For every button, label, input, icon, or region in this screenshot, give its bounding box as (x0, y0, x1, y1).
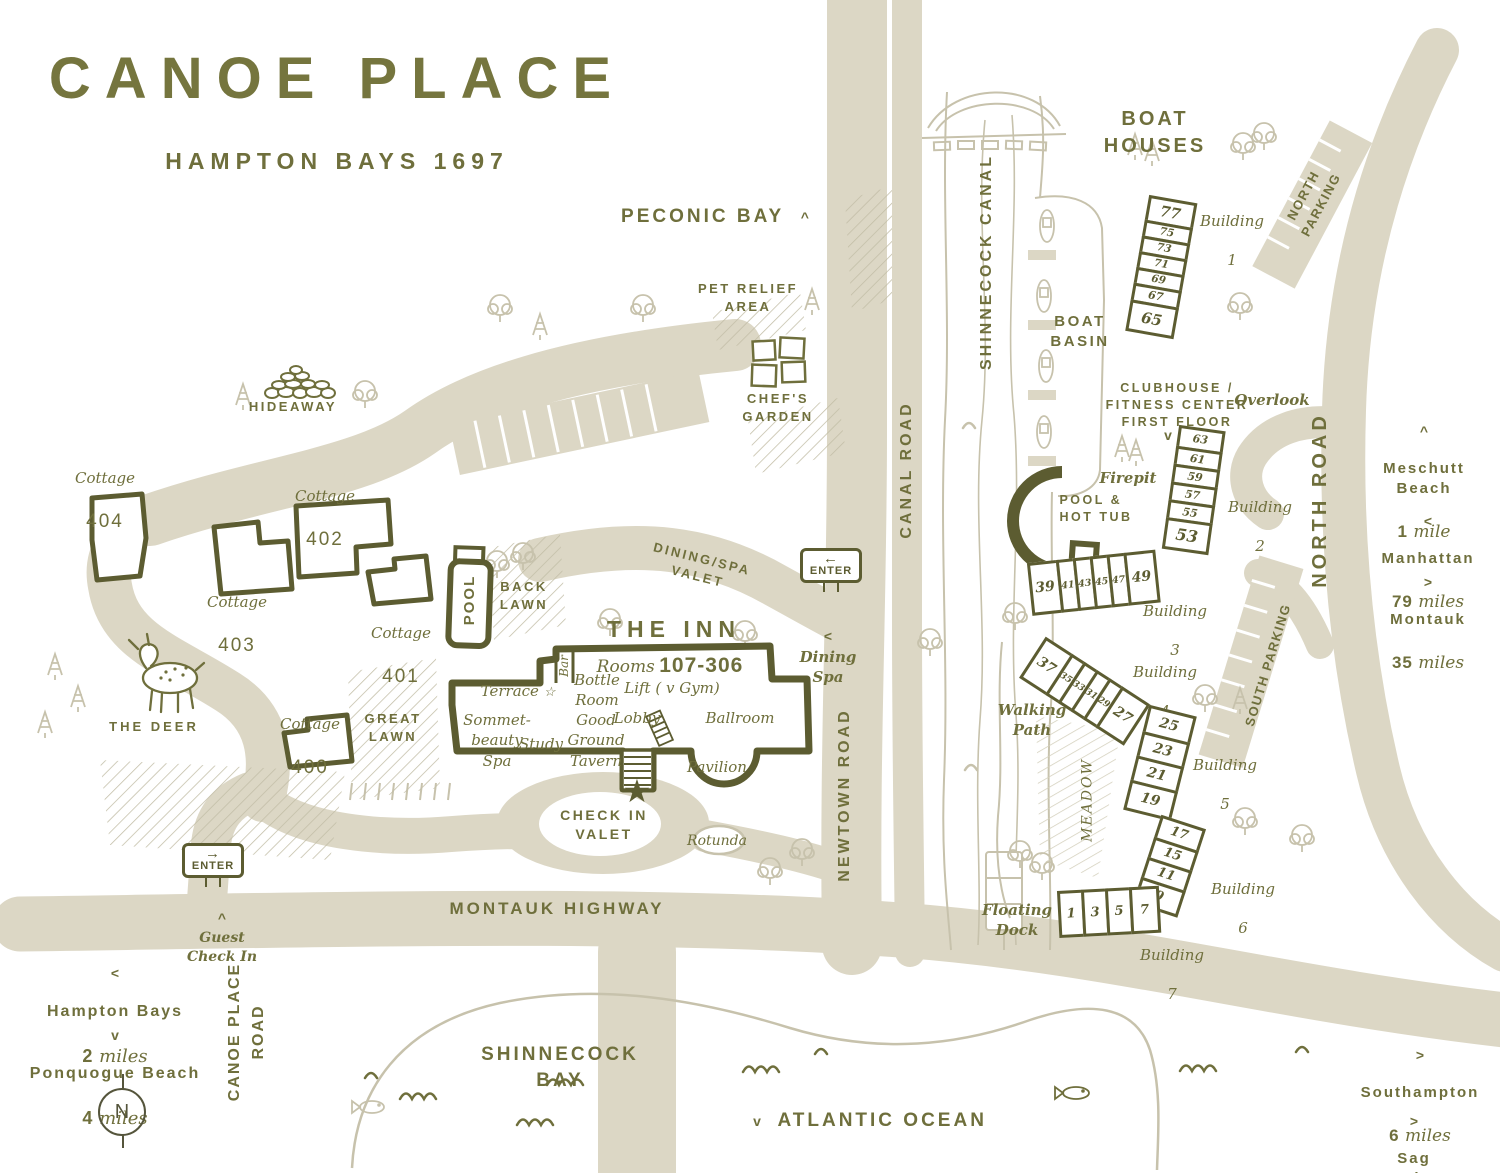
west-arrow-icon: < (47, 966, 183, 980)
cottage-404-label: Cottage 404 (75, 446, 135, 557)
building-number: 6 (1238, 919, 1248, 937)
lobby-label: Lobby (614, 708, 661, 728)
atlantic-ocean-label: v ATLANTIC OCEAN (753, 1108, 987, 1134)
guest-check-in-label: ^ Guest Check In (187, 886, 257, 989)
meadow-label: MEADOW (1078, 758, 1099, 842)
resort-map: CANOE PLACE HAMPTON BAYS 1697 PECONIC BA… (0, 0, 1500, 1173)
building-7-label: Building 7 (1140, 926, 1204, 1004)
atlantic-text: ATLANTIC OCEAN (777, 1110, 986, 1131)
cottage-403-label: Cottage 403 (207, 570, 267, 681)
unit-cell: 53 (1161, 516, 1212, 554)
dining-spa-label: < Dining Spa (800, 604, 857, 709)
terrace-star-icon: ☆ (544, 685, 556, 700)
cottage-word: Cottage (295, 486, 355, 506)
north-arrow-icon: ^ (801, 209, 809, 225)
newtown-road-label: NEWTOWN ROAD (833, 708, 857, 881)
cottage-400-label: Cottage 400 (280, 692, 340, 803)
montauk-highway-label: MONTAUK HIGHWAY (450, 898, 665, 921)
building-number: 7 (1167, 985, 1177, 1003)
canal-bridge (922, 92, 1066, 150)
cottage-401-label: Cottage 401 (371, 601, 431, 712)
montauk-distance: > Montauk 35 miles (1390, 553, 1466, 697)
check-in-valet-label: CHECK IN VALET (560, 806, 648, 844)
building-2-label: Building 2 (1228, 478, 1292, 556)
north-road-label: NORTH ROAD (1305, 412, 1335, 588)
hideaway-rocks (265, 366, 335, 398)
boat-basin-label: BOAT BASIN (1050, 312, 1109, 353)
chefs-garden-beds (752, 337, 806, 386)
building-word: Building (1200, 212, 1264, 230)
shinnecock-bay-label: SHINNECOCK BAY (481, 1042, 639, 1093)
boat-houses-label: BOAT HOUSES (1104, 106, 1206, 160)
cottage-word: Cottage (280, 714, 340, 734)
south-arrow-icon: v (30, 1028, 200, 1042)
building-word: Building (1228, 498, 1292, 516)
floating-dock-label: Floating Dock (982, 900, 1052, 941)
right-arrow-icon: → (187, 848, 239, 860)
cottage-402-label: Cottage 402 (295, 464, 355, 575)
enter-sign-text: ENTER (192, 860, 234, 872)
dining-spa-arrow-icon: < (824, 628, 832, 644)
east-arrow-icon: > (1371, 1114, 1457, 1128)
clubhouse-arrow-icon: v (1164, 428, 1172, 442)
compass-rose: N (98, 1088, 146, 1136)
shinnecock-canal-label: SHINNECOCK CANAL (975, 154, 999, 370)
ballroom-label: Ballroom (705, 708, 774, 728)
lift-gym-label: Lift ( v Gym) (624, 678, 720, 698)
terrace-label: Terrace ☆ (481, 681, 556, 702)
peconic-bay-text: PECONIC BAY (621, 206, 784, 227)
enter-sign-text: ENTER (810, 565, 852, 577)
pavilion-label: Pavilion (687, 757, 747, 777)
distance-number: 35 (1392, 653, 1413, 672)
check-in-star-icon: ★ (623, 775, 652, 807)
bottle-room-label: Bottle Room (574, 670, 620, 711)
chefs-garden-label: CHEF'S GARDEN (742, 390, 813, 425)
cottage-number: 403 (207, 633, 267, 659)
cottage-word: Cottage (75, 468, 135, 488)
north-arrow-icon: ^ (1383, 424, 1465, 438)
cottage-word: Cottage (207, 592, 267, 612)
dining-spa-text: Dining Spa (800, 647, 857, 688)
enter-sign-south: → ENTER (182, 843, 244, 878)
peconic-bay-label: PECONIC BAY ^ (621, 204, 809, 230)
building-word: Building (1140, 946, 1204, 964)
distance-name: Montauk (1390, 610, 1466, 630)
cottage-number: 401 (371, 664, 431, 690)
cottage-number: 400 (280, 755, 340, 781)
hideaway-label: HIDEAWAY (249, 398, 337, 416)
enter-sign-north: ← ENTER (800, 548, 862, 583)
the-deer-label: THE DEER (109, 718, 199, 736)
guest-check-in-text: Guest Check In (187, 929, 257, 967)
compass-n-label: N (115, 1101, 129, 1124)
distance-name: Ponquogue Beach (30, 1063, 200, 1085)
building-1-label: Building 1 (1200, 192, 1264, 270)
guest-arrow-icon: ^ (218, 910, 226, 926)
east-arrow-icon: > (1390, 575, 1466, 589)
cottage-401-shape (368, 556, 431, 604)
west-arrow-icon: < (1382, 514, 1475, 528)
south-arrow-icon: v (753, 1113, 761, 1129)
cottage-number: 404 (75, 509, 135, 535)
cottage-word: Cottage (371, 623, 431, 643)
pool-label: POOL (459, 575, 482, 626)
building-word: Building (1211, 880, 1275, 898)
canal-road-label: CANAL ROAD (895, 401, 919, 538)
distance-unit: miles (1418, 653, 1464, 673)
building-5-label: Building 5 (1193, 736, 1257, 814)
walking-path-label: Walking Path (998, 700, 1066, 741)
building-word: Building (1143, 602, 1207, 620)
terrace-text: Terrace (481, 682, 539, 700)
building-number: 1 (1227, 251, 1237, 269)
distance-number: 4 (82, 1108, 93, 1128)
clubhouse-label: CLUBHOUSE / FITNESS CENTER FIRST FLOOR (1106, 380, 1249, 431)
inn-title: THE INN (607, 614, 741, 645)
map-title: CANOE PLACE (49, 40, 625, 118)
study-label: Study (519, 734, 563, 754)
east-arrow-icon: > (1361, 1048, 1480, 1062)
rotunda-label: Rotunda (687, 832, 747, 851)
overlook-label: Overlook (1234, 390, 1309, 410)
left-arrow-icon: ← (805, 553, 857, 565)
building-word: Building (1193, 756, 1257, 774)
distance-name: Sag Harbor (1371, 1149, 1457, 1173)
firepit-label: Firepit (1100, 468, 1157, 488)
pool-hot-tub-label: POOL & HOT TUB (1059, 492, 1132, 526)
back-lawn-label: BACK LAWN (500, 578, 548, 613)
map-subtitle: HAMPTON BAYS 1697 (165, 146, 509, 177)
cottage-number: 402 (295, 527, 355, 553)
building-6-label: Building 6 (1211, 860, 1275, 938)
building-word: Building (1133, 663, 1197, 681)
building-number: 2 (1255, 537, 1265, 555)
great-lawn-label: GREAT LAWN (364, 710, 421, 745)
rooms-range: 107-306 (659, 654, 743, 677)
bar-label: Bar (555, 655, 573, 677)
sag-harbor-distance: > Sag Harbor 13 miles (1371, 1092, 1457, 1173)
building-number: 5 (1220, 795, 1230, 813)
pet-relief-label: PET RELIEF AREA (698, 280, 798, 315)
bay-shoreline (352, 994, 1158, 1170)
